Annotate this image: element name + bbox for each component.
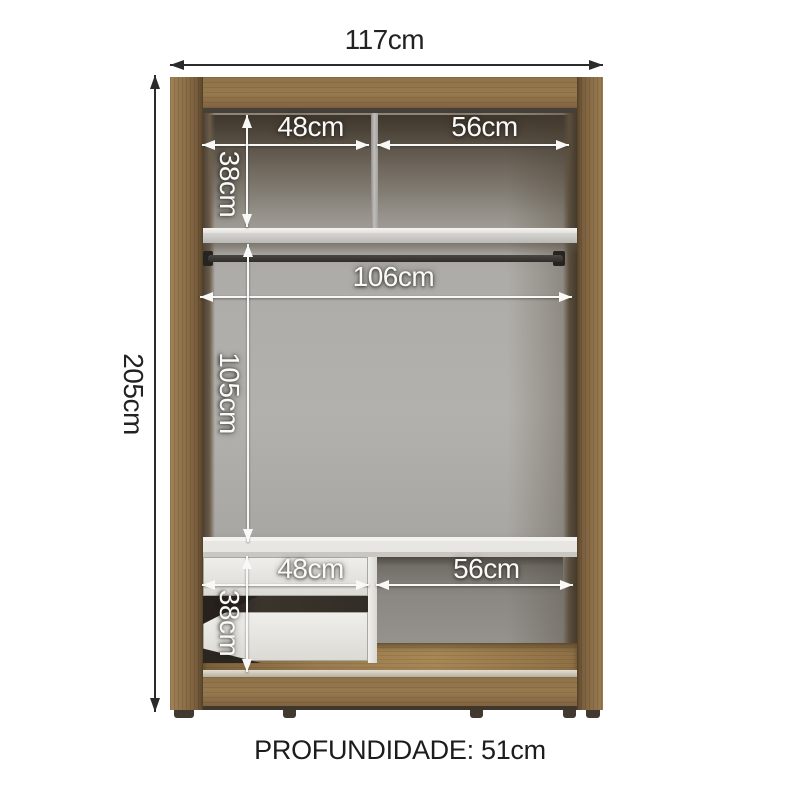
arrowhead-down-icon xyxy=(150,698,160,712)
arrowhead-left-icon xyxy=(376,580,389,590)
dim-total-width-label: 117cm xyxy=(345,24,424,56)
arrowhead-right-icon xyxy=(589,60,603,70)
arrowhead-left-icon xyxy=(202,140,215,150)
dim-line xyxy=(247,244,249,542)
plinth-top-edge xyxy=(203,670,577,677)
wardrobe-dimension-diagram: 48cm 56cm 38cm 106cm 105cm 48cm 56cm xyxy=(0,0,800,800)
arrowhead-right-icon xyxy=(559,292,572,302)
dim-line xyxy=(246,556,248,672)
dim-line xyxy=(154,75,156,712)
arrowhead-left-icon xyxy=(200,292,213,302)
arrowhead-up-icon xyxy=(150,75,160,89)
arrowhead-up-icon xyxy=(242,115,252,128)
arrowhead-down-icon xyxy=(242,659,252,672)
foot xyxy=(174,710,194,718)
dim-top-height-label: 38cm xyxy=(213,151,245,217)
dim-top-right-width-label: 56cm xyxy=(451,111,517,143)
foot xyxy=(586,710,600,718)
arrowhead-up-icon xyxy=(242,556,252,569)
arrowhead-right-icon xyxy=(560,580,573,590)
dim-line xyxy=(246,115,248,227)
arrowhead-right-icon xyxy=(556,140,569,150)
foot xyxy=(563,710,576,718)
dim-line xyxy=(200,296,572,298)
dim-top-left-width-label: 48cm xyxy=(277,111,343,143)
top-shelf-shadow xyxy=(203,243,577,255)
dim-line xyxy=(202,144,369,146)
bottom-shelf xyxy=(203,537,577,557)
dim-bottom-height-label: 38cm xyxy=(213,590,245,656)
dim-line xyxy=(170,64,603,66)
arrowhead-right-icon xyxy=(356,580,369,590)
dim-mid-height-label: 105cm xyxy=(213,352,245,434)
top-shelf xyxy=(203,228,577,255)
foot xyxy=(283,710,296,718)
arrowhead-right-icon xyxy=(356,140,369,150)
dim-line xyxy=(377,144,569,146)
dim-bottom-left-width-label: 48cm xyxy=(277,553,343,585)
frame-top-bar xyxy=(170,77,603,113)
arrowhead-down-icon xyxy=(243,529,253,542)
dim-total-height-label: 205cm xyxy=(117,353,149,435)
frame-plinth xyxy=(203,677,577,710)
foot xyxy=(470,710,483,718)
frame-left-stile xyxy=(170,77,203,710)
arrowhead-left-icon xyxy=(170,60,184,70)
dim-bottom-right-width-label: 56cm xyxy=(453,553,519,585)
top-shelf-edge xyxy=(203,233,577,243)
depth-caption: PROFUNDIDADE: 51cm xyxy=(0,735,800,766)
drawer-unit-side-panel xyxy=(368,557,377,663)
frame-right-stile xyxy=(577,77,603,710)
arrowhead-left-icon xyxy=(202,580,215,590)
arrowhead-up-icon xyxy=(243,244,253,257)
center-divider-panel xyxy=(371,113,378,231)
dim-mid-width-label: 106cm xyxy=(353,261,435,293)
arrowhead-left-icon xyxy=(377,140,390,150)
